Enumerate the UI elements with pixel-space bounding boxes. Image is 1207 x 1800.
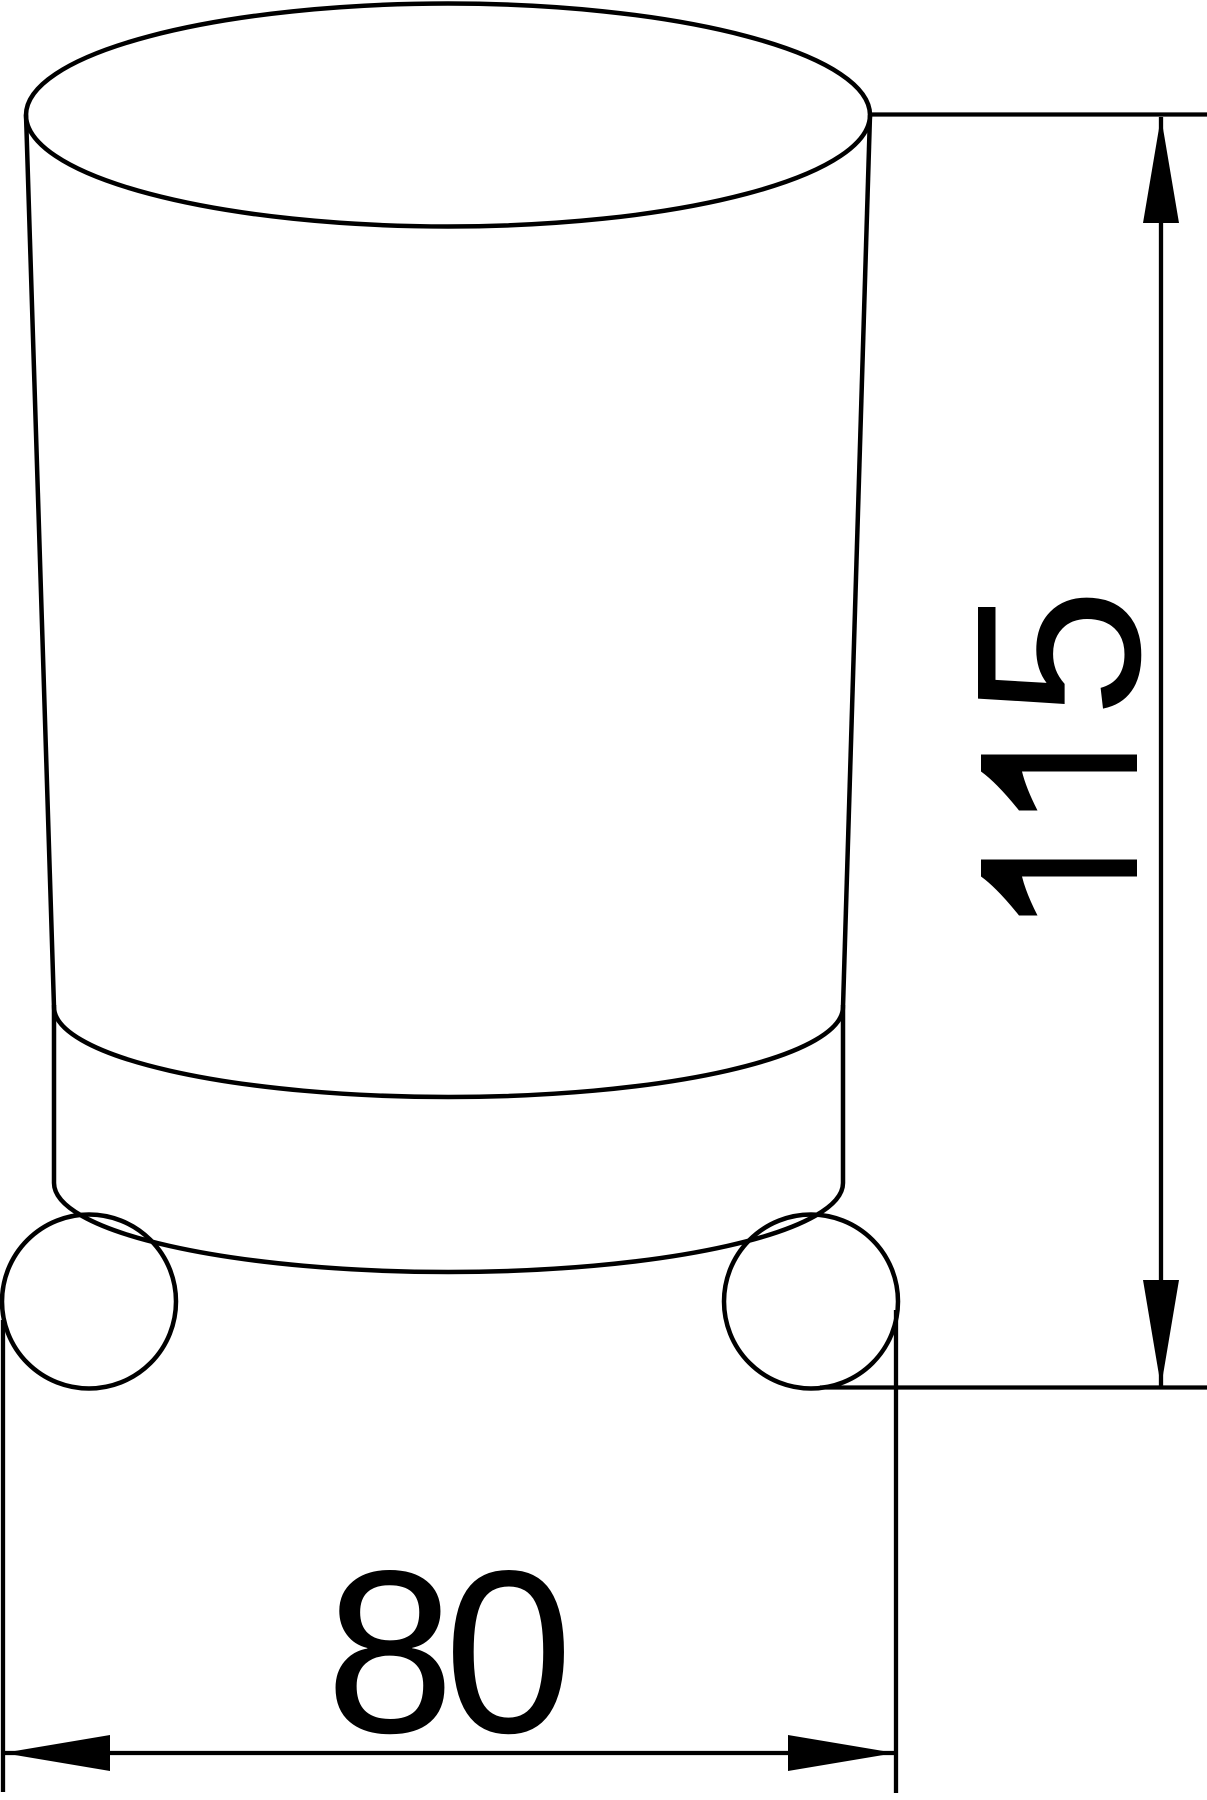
svg-text:5: 5 [927, 588, 1189, 718]
svg-text:80: 80 [325, 1523, 564, 1782]
